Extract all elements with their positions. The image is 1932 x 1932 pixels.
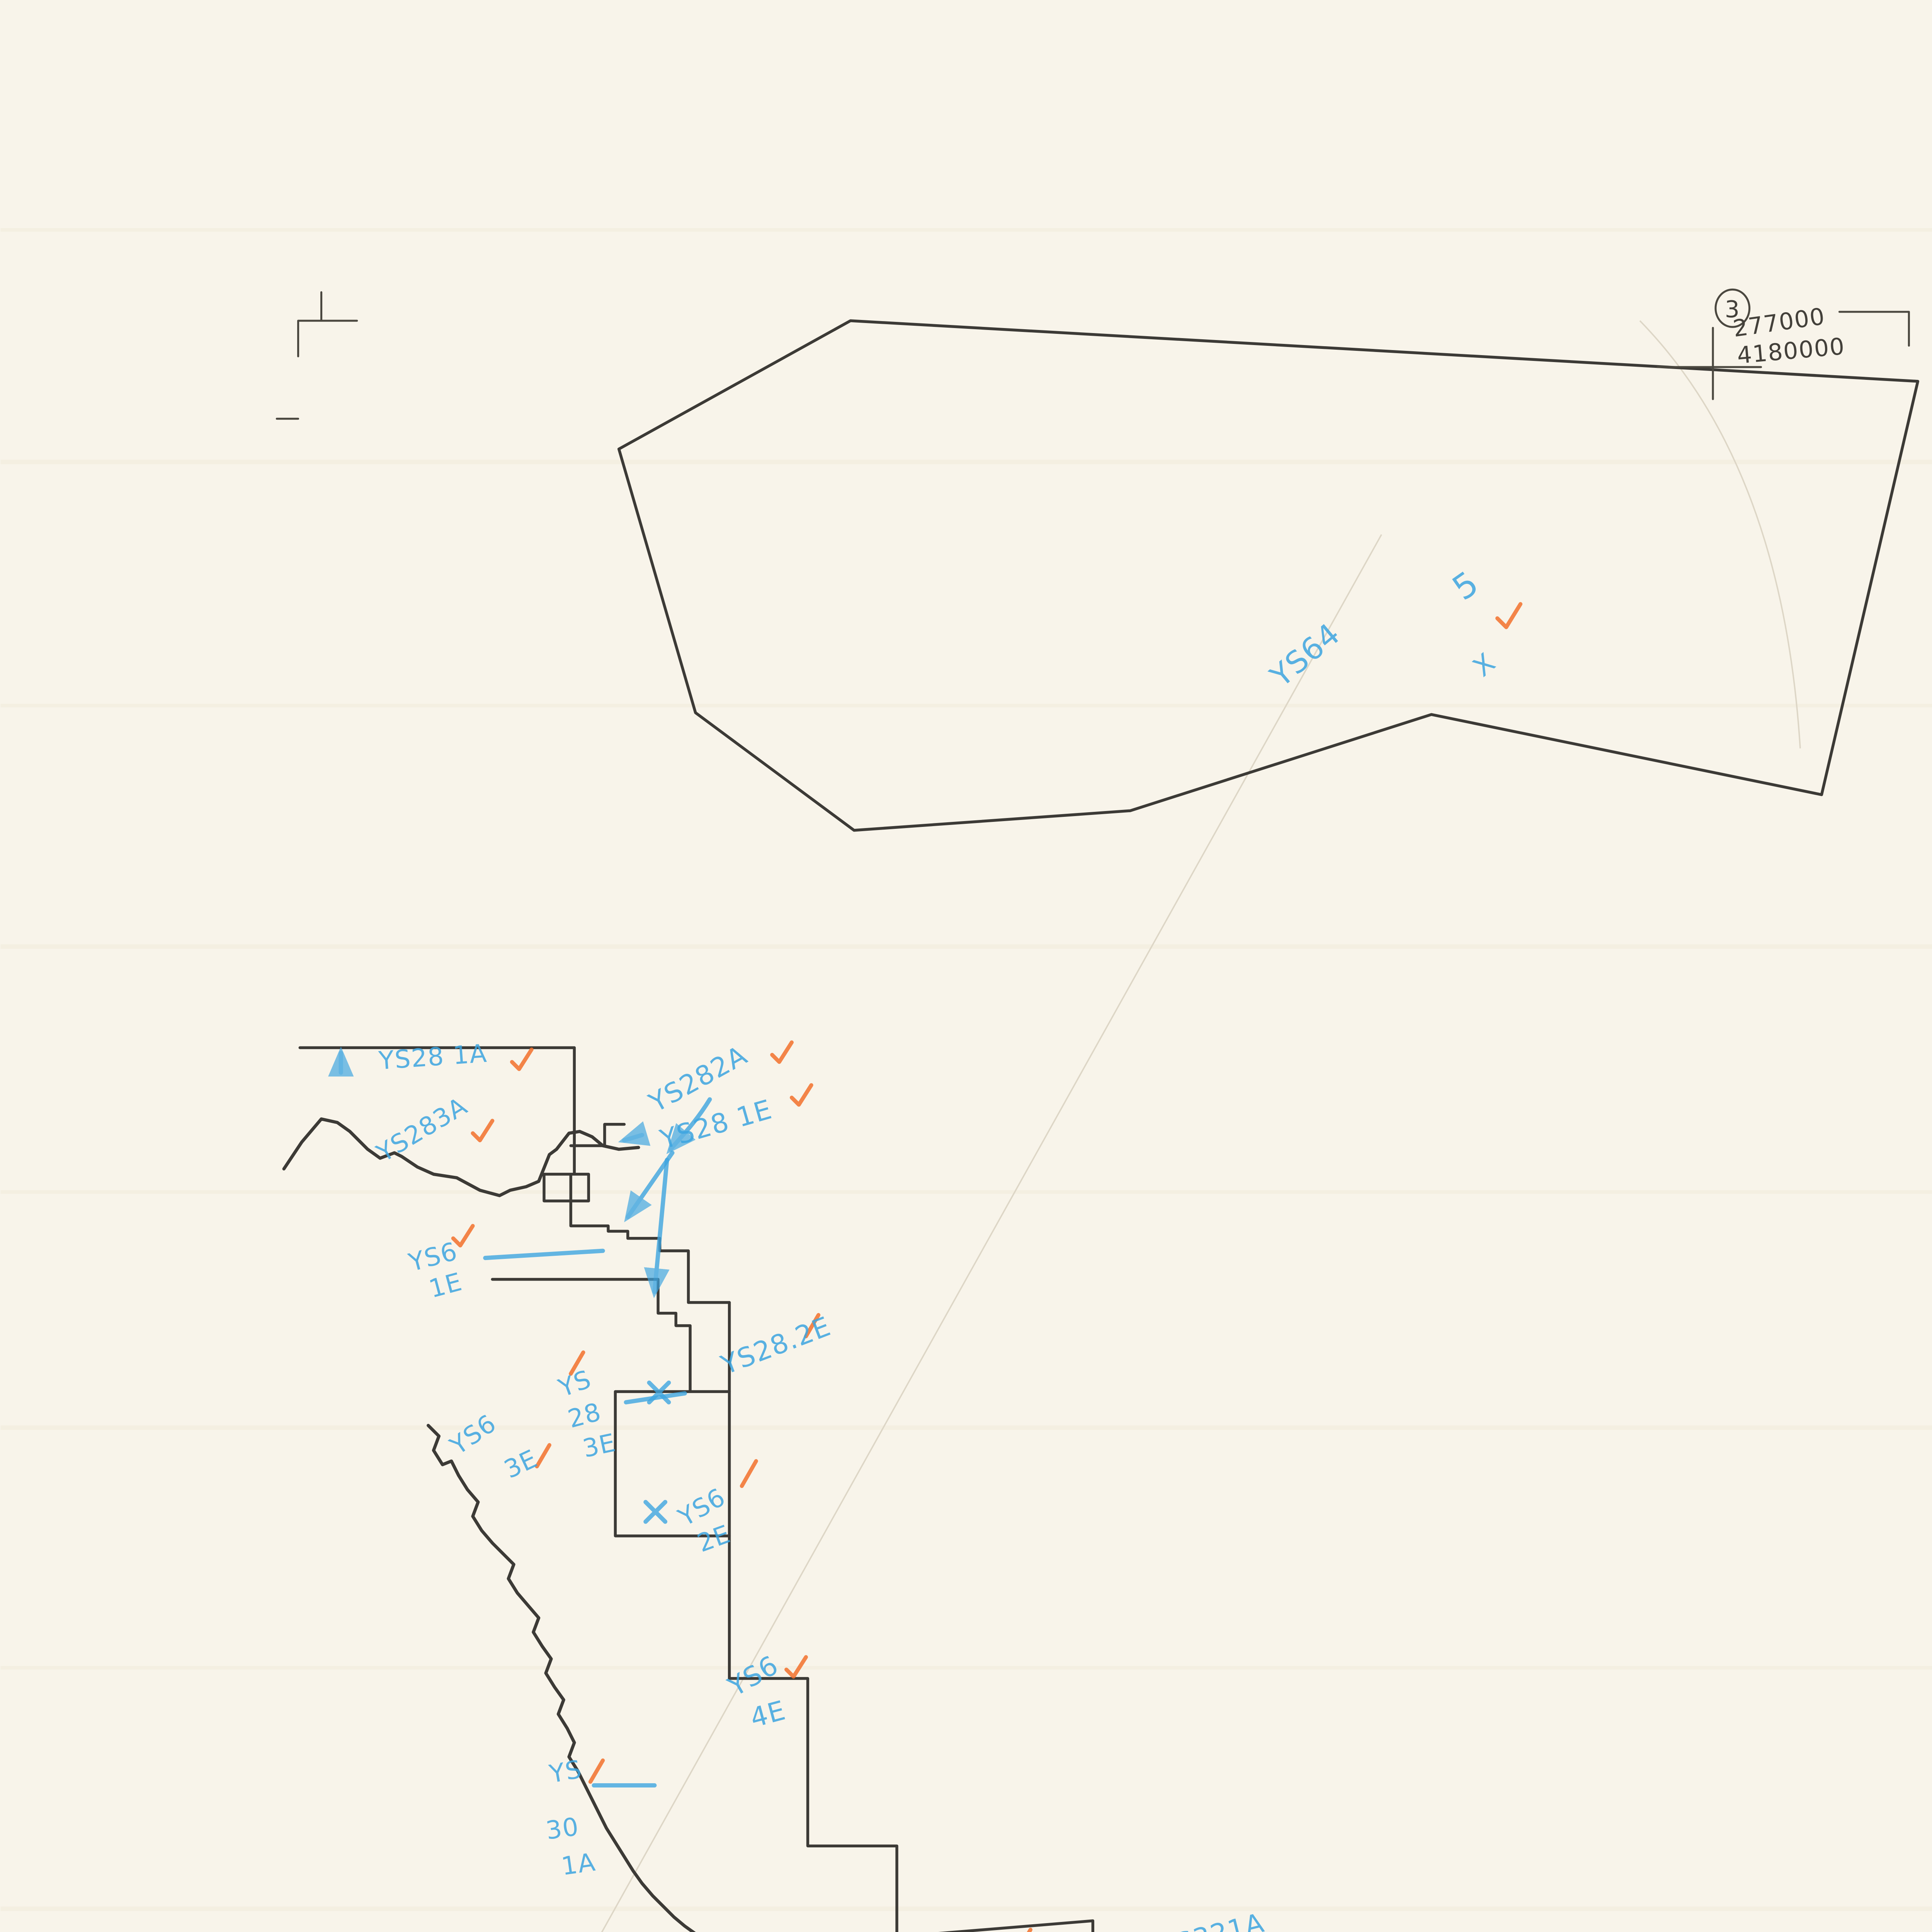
label-ys30-1a: YS: [547, 1755, 584, 1789]
drafting-sheet: 3 277000 4180000 1 258000 4154000 2 2770…: [0, 0, 1932, 1932]
label-ys30-1a-3: 1A: [560, 1848, 597, 1881]
label-ys30-1a-2: 30: [544, 1812, 581, 1845]
paper-background: [1, 0, 1932, 1932]
map-canvas: 3 277000 4180000 1 258000 4154000 2 2770…: [0, 0, 1932, 1932]
